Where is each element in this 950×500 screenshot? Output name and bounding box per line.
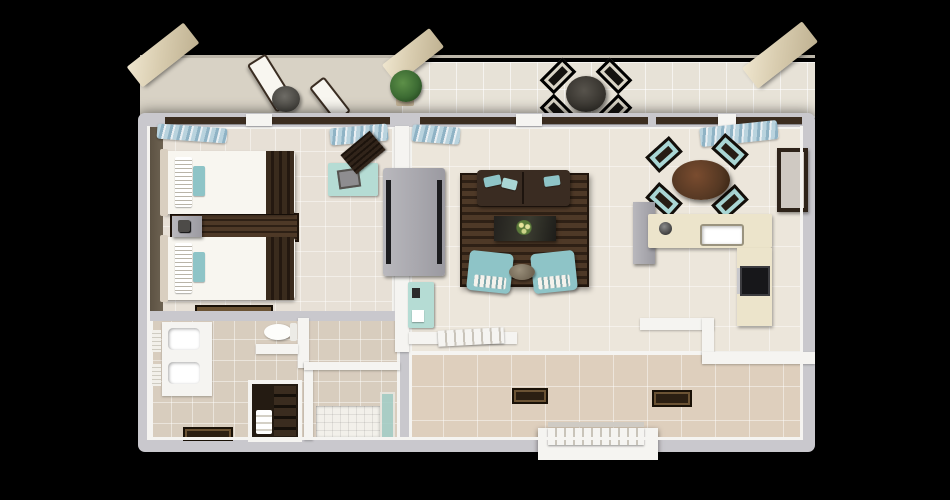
vanity-sink-1: [168, 328, 200, 350]
bed-1-pillow-teal: [193, 166, 205, 196]
potted-plant: [390, 70, 422, 102]
closet-towels: [256, 410, 272, 434]
bedroom-window-frame: [165, 117, 390, 124]
wall-mirror: [777, 148, 808, 212]
inner-wall-bottom: [150, 437, 800, 440]
flower-centerpiece: [515, 220, 533, 235]
entry-threshold: [548, 422, 644, 427]
bed-2-pillow-teal: [193, 252, 205, 282]
bed-2-pillow-white: [175, 243, 192, 293]
patio-table: [566, 76, 606, 112]
balcony-side-table: [272, 86, 300, 112]
inner-wall-right: [800, 126, 803, 440]
inner-wall-left: [147, 126, 150, 440]
bed-1-runner: [266, 151, 294, 214]
towel-rack-1: [152, 330, 161, 352]
oven-handle: [737, 268, 740, 294]
bed-1-headboard: [160, 149, 168, 216]
shower-tray: [316, 406, 380, 438]
doormat-1: [512, 388, 548, 404]
ottoman: [509, 264, 535, 280]
window-mullion-1: [246, 114, 272, 126]
wc-partition: [298, 318, 309, 368]
vanity-sink-2: [168, 362, 200, 384]
kitchen-sink: [700, 224, 744, 246]
balcony-edge: [140, 55, 815, 58]
dining-table: [672, 160, 730, 200]
towel-rack-2: [152, 364, 161, 386]
cooktop-oven: [740, 266, 770, 296]
nightstand-lamp: [178, 220, 190, 232]
bed-2-headboard: [160, 235, 168, 302]
floor-plan-render: [0, 0, 950, 500]
tv-console: [383, 168, 445, 276]
shower-glass-panel: [382, 394, 393, 438]
hall-wall-right: [702, 352, 815, 364]
bedroom-bath-wall: [150, 311, 395, 321]
toilet: [264, 324, 292, 340]
bath-shelf: [256, 344, 298, 354]
toilet-tank: [290, 323, 297, 341]
kettle: [659, 222, 672, 235]
tv-screen-bedroom-side: [386, 180, 391, 264]
closet-shelves: [274, 386, 296, 436]
living-curtain-left: [411, 124, 460, 144]
bed-1-pillow-white: [175, 157, 192, 207]
shower-top-wall: [304, 362, 400, 370]
shower-partition: [304, 362, 313, 440]
sofa-seat-split: [522, 172, 524, 204]
tv-screen-living-side: [437, 180, 442, 264]
minibar-label: [412, 310, 424, 322]
window-mullion-2: [516, 114, 542, 126]
bed-2-runner: [266, 237, 294, 300]
minibar-door-detail: [412, 288, 420, 298]
doormat-2: [652, 390, 692, 407]
